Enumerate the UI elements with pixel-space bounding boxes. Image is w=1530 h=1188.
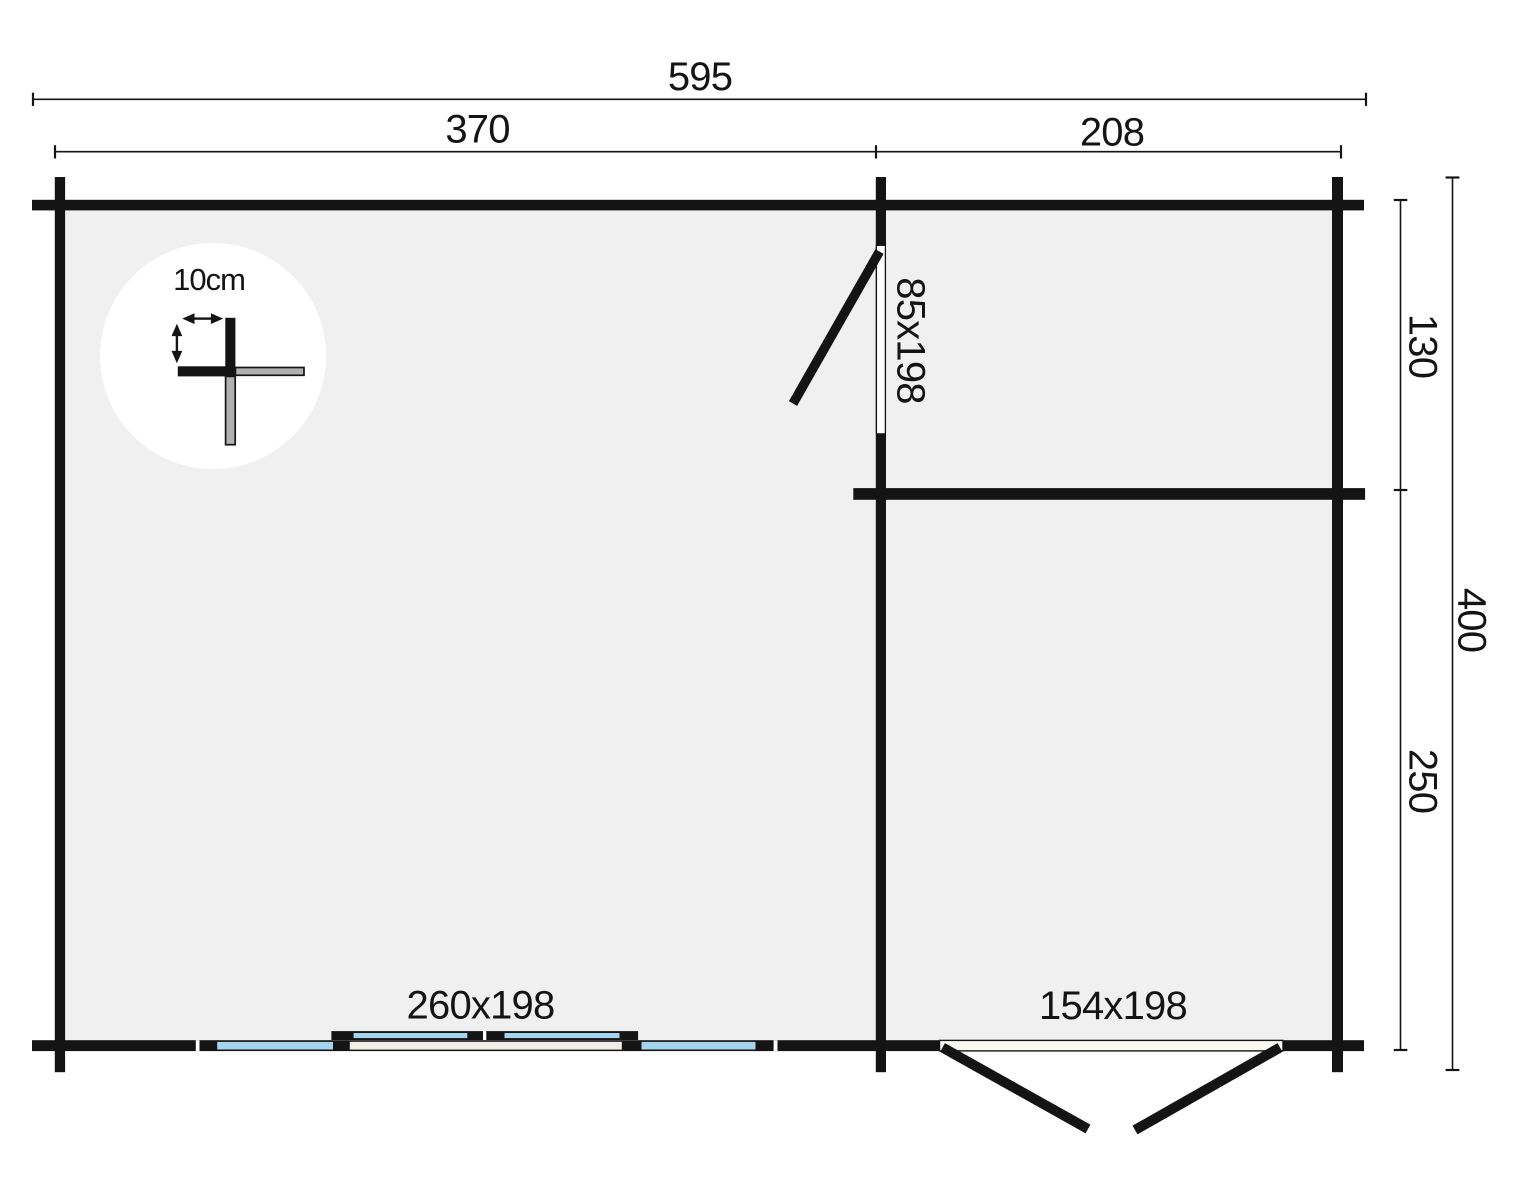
svg-text:10cm: 10cm bbox=[173, 262, 245, 297]
svg-text:85x198: 85x198 bbox=[889, 277, 933, 403]
svg-text:260x198: 260x198 bbox=[407, 984, 555, 1028]
svg-text:130: 130 bbox=[1401, 314, 1445, 378]
svg-text:370: 370 bbox=[445, 108, 509, 152]
svg-text:595: 595 bbox=[668, 55, 732, 99]
svg-text:154x198: 154x198 bbox=[1039, 984, 1187, 1028]
svg-text:208: 208 bbox=[1080, 111, 1144, 155]
svg-text:400: 400 bbox=[1450, 588, 1494, 652]
svg-text:250: 250 bbox=[1401, 749, 1445, 813]
